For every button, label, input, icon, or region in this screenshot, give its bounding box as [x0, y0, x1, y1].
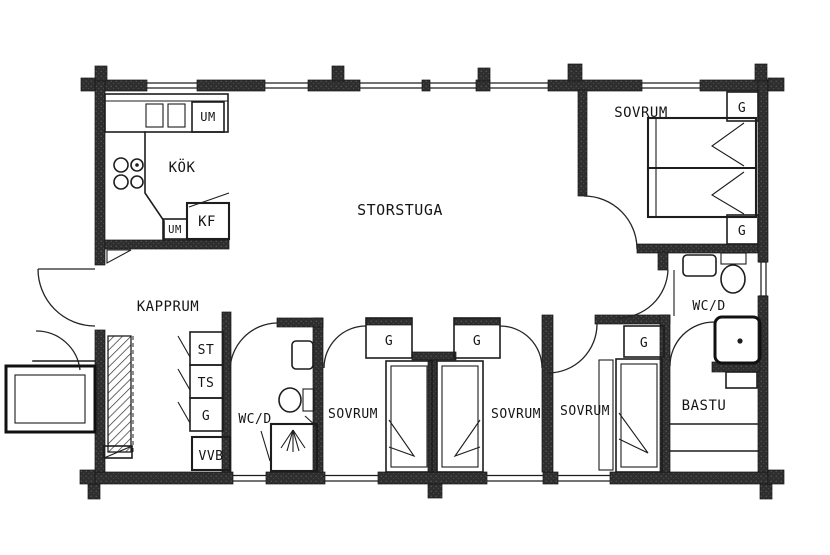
room-label-bath-bottom: WC/D — [238, 412, 271, 427]
toilet-bowl-icon — [279, 388, 301, 412]
bath-bottom-fixtures — [261, 341, 317, 471]
coat-rack-icon — [108, 336, 131, 452]
fridge-door-line — [189, 193, 229, 207]
room-label-bedroom-mid: SOVRUM — [491, 407, 541, 422]
bed3-door-arc — [548, 324, 597, 373]
stove-icon — [114, 158, 143, 189]
window-icon — [759, 262, 768, 296]
room-label-bath-top: WC/D — [692, 299, 725, 314]
label-um-top: UM — [200, 110, 215, 124]
sink-icon — [168, 104, 185, 127]
door-arcs — [36, 196, 714, 373]
porch — [6, 366, 95, 432]
toilet-bowl-icon — [721, 265, 745, 293]
master-door-arc — [584, 196, 637, 249]
sink-icon — [146, 104, 163, 127]
bath-bottom-door-arc — [230, 323, 277, 371]
corner-mark — [107, 250, 131, 263]
bath-top-door-arc — [618, 270, 668, 318]
label-wardrobe: G — [738, 224, 746, 239]
blanket-fold — [712, 172, 744, 214]
label-fridge: KF — [198, 214, 216, 230]
label-wardrobe: G — [640, 336, 648, 351]
room-label-entry: KAPPRUM — [137, 299, 200, 315]
fixture-labels: UM UM KF ST TS G VVB G G G G G — [168, 101, 746, 464]
entry-door-arc — [38, 269, 95, 326]
drain-icon — [737, 338, 742, 343]
floor-plan-page: KÖK STORSTUGA SOVRUM KAPPRUM WC/D WC/D S… — [0, 0, 830, 555]
sauna-heater-icon — [726, 372, 757, 388]
counter-left-edge — [145, 132, 164, 240]
blanket-fold — [389, 420, 414, 456]
entry-door2-arc — [36, 331, 80, 370]
bed1-door-arc — [324, 326, 366, 368]
floor-plan: KÖK STORSTUGA SOVRUM KAPPRUM WC/D WC/D S… — [0, 0, 830, 555]
label-wardrobe: G — [385, 334, 393, 349]
bath-top-sauna-fixtures — [670, 253, 760, 451]
label-water-heater: VVB — [199, 449, 224, 464]
wall-between-wardrobes — [412, 352, 456, 360]
toilet-tank-icon — [303, 389, 314, 411]
wall-master-bottom — [637, 244, 758, 253]
label-wardrobe: G — [473, 334, 481, 349]
room-label-bedroom-left: SOVRUM — [328, 407, 378, 422]
wall-bath-bottom-top — [277, 318, 323, 327]
label-closet-g: G — [202, 409, 210, 424]
entry-fixtures — [6, 332, 230, 470]
corner-shower-icon — [715, 317, 760, 363]
room-label-bedroom-right: SOVRUM — [560, 404, 610, 419]
wall-bath-top-jamb — [658, 252, 668, 270]
toilet-tank-icon — [721, 253, 746, 264]
label-um-bottom: UM — [168, 224, 182, 236]
wall-kitchen-entry — [105, 240, 229, 249]
blanket-fold — [619, 413, 648, 453]
room-label-bedroom-master: SOVRUM — [614, 105, 668, 121]
sauna-door-arc — [670, 322, 714, 366]
washbasin-icon — [292, 341, 313, 369]
wall-bed2-bed3 — [542, 315, 553, 472]
bed2-door-arc — [500, 326, 542, 368]
room-label-sauna: BASTU — [682, 398, 727, 414]
label-wardrobe: G — [738, 101, 746, 116]
blanket-fold — [712, 123, 744, 166]
label-closet-ts: TS — [198, 376, 215, 391]
washbasin-icon — [683, 255, 716, 276]
bed-icon — [616, 359, 662, 472]
porch-inner — [15, 375, 85, 423]
wall-master-left — [578, 90, 587, 196]
room-label-living: STORSTUGA — [357, 201, 443, 219]
bed-icon — [437, 361, 483, 472]
blanket-fold — [455, 420, 480, 456]
bed-icon — [386, 361, 432, 472]
label-closet-st: ST — [198, 343, 215, 358]
shower-spray-icon — [281, 430, 305, 452]
room-label-kitchen: KÖK — [169, 158, 196, 176]
bedroom-furniture — [366, 318, 664, 472]
